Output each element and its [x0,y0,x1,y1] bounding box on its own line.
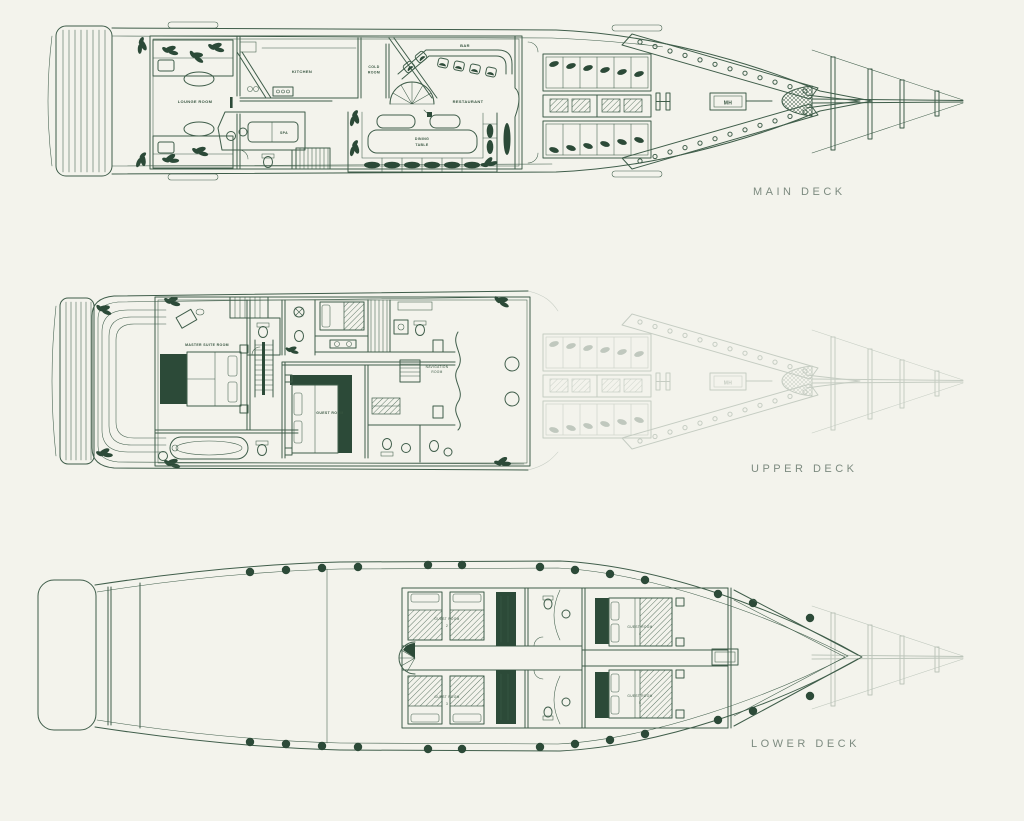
guest-room-2-label: GUEST ROOM [434,695,459,699]
lower-deck-plan: GUEST ROOM 2 GUEST ROOM 3 [38,561,963,753]
guest-room-upper-label: GUEST ROOM [316,411,343,415]
bow-foredeck: MH [543,34,963,169]
bowsprit [812,50,963,153]
upper-foredeck [492,293,519,470]
room-guest-twin-bottom: GUEST ROOM 3 [408,670,516,724]
room-guest-upper: GUEST ROOM [282,362,455,458]
sun-loungers-port [543,54,651,91]
master-suite-label: MASTER SUITE ROOM [185,343,229,347]
cleat [656,93,670,110]
lounge-label: LOUNGE ROOM [178,99,213,104]
deck-plans-canvas: MH LOUNGE ROOM [0,0,1024,821]
lower-portholes [246,561,814,753]
navigation-label-2: ROOM [431,370,442,374]
room-guest-twin-top: GUEST ROOM 2 [408,592,516,646]
guest-room-1-number: 2 [446,624,448,628]
guest-room-3-number: 4 [639,632,641,636]
lower-ghost-bowsprit [812,606,963,709]
guest-room-2-number: 3 [446,702,448,706]
upper-wc-c [368,425,455,462]
lower-spiral-stair [399,642,415,674]
upper-wc-b [282,300,315,355]
room-guest-double-top: GUEST ROOM 4 [595,598,684,646]
sun-loungers-starboard [543,121,651,158]
cold-room-label-2: ROOM [368,71,380,75]
restaurant-label: RESTAURANT [453,99,484,104]
navigation-label-1: NAVIGATION [426,365,449,369]
room-navigation: NAVIGATION ROOM [400,332,460,430]
room-master-suite: MASTER SUITE ROOM [155,300,298,433]
lower-bathrooms [534,590,570,724]
guest-room-4-number: 5 [639,701,641,705]
bow-net [782,86,812,116]
spa-label: SPA [280,131,288,135]
room-spa: SPA [218,112,305,150]
upper-dresser [372,398,400,414]
deck-hatches [543,95,651,117]
deck-title-main: MAIN DECK [753,186,846,198]
dining-label-2: TABLE [415,143,428,147]
main-cabin: LOUNGE ROOM KITCHEN COLD ROOM [135,35,538,172]
room-cold: COLD ROOM [358,38,389,98]
guest-room-3-label: GUEST ROOM [627,625,652,629]
upper-corridor-stairs [255,340,273,397]
main-deck-plan: MH LOUNGE ROOM [48,22,963,180]
room-guest-double-bottom: GUEST ROOM 5 [595,670,684,718]
upper-deck-plan: MASTER SUITE ROOM [52,291,963,470]
upper-master-bath [159,437,269,461]
upper-stern-platform [52,298,94,464]
mh-label: MH [724,101,733,107]
main-spiral-stair [390,82,434,117]
lower-cabins: GUEST ROOM 2 GUEST ROOM 3 [399,588,858,728]
deck-title-upper: UPPER DECK [751,463,858,475]
guest-room-4-label: GUEST ROOM [627,694,652,698]
room-dining: DINING TABLE [348,109,499,172]
upper-ghost-bow [543,314,963,449]
upper-cabin: MASTER SUITE ROOM [155,293,530,470]
kitchen-label: KITCHEN [292,69,312,74]
deck-plan-page: { "colors": { "background": "#f3f3ec", "… [0,0,1024,821]
cold-room-label-1: COLD [368,65,379,69]
guest-room-1-label: GUEST ROOM [434,617,459,621]
lower-hold [108,569,327,743]
bar-label: BAR [460,43,470,48]
lower-bow-compartment [712,590,858,726]
upper-fwd-bedroom [315,300,455,352]
room-kitchen: KITCHEN [237,42,358,98]
dining-label-1: DINING [415,137,429,141]
deck-title-lower: LOWER DECK [751,738,860,750]
room-lounge: LOUNGE ROOM [135,35,233,169]
mast-house: MH [710,93,746,110]
main-stern-platform [48,26,112,176]
